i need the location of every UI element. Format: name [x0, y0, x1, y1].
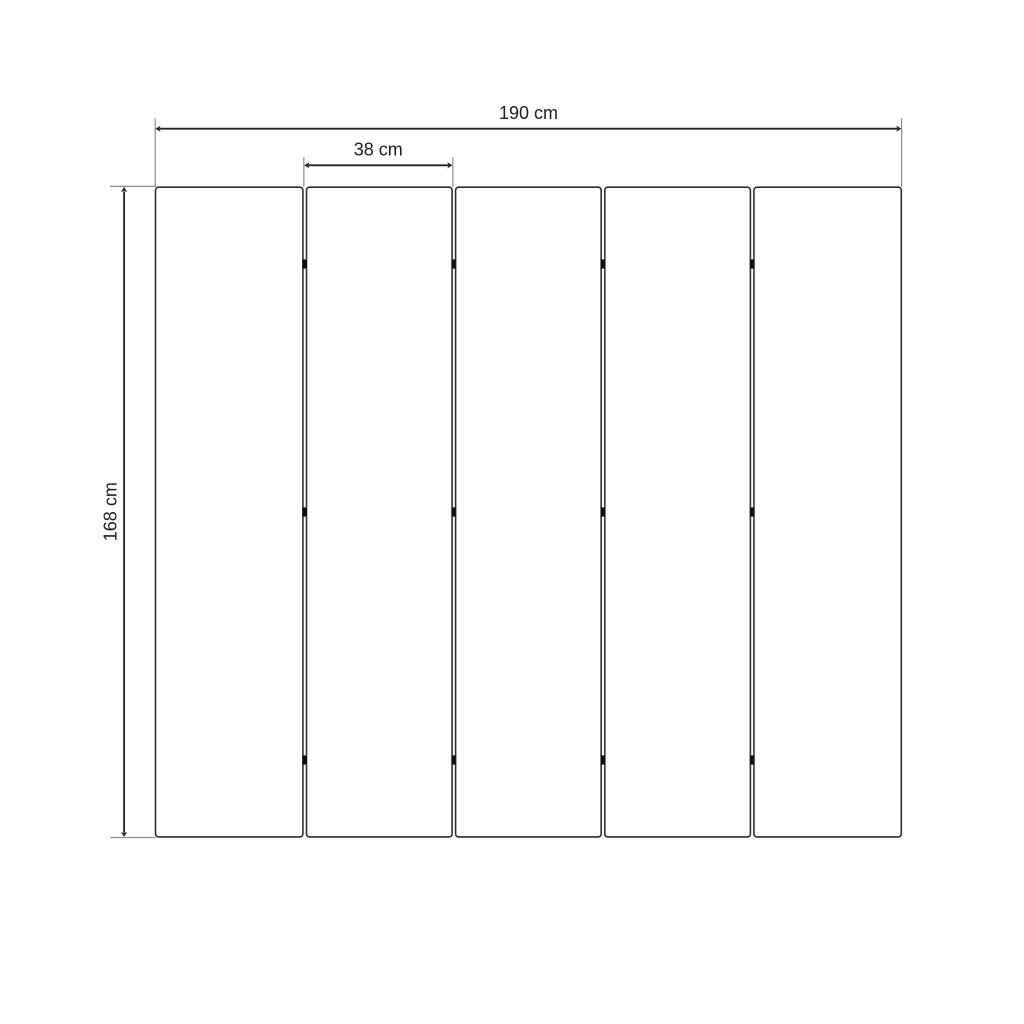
svg-text:168 cm: 168 cm: [101, 482, 121, 541]
svg-text:38 cm: 38 cm: [354, 140, 403, 160]
svg-text:190 cm: 190 cm: [499, 103, 558, 123]
